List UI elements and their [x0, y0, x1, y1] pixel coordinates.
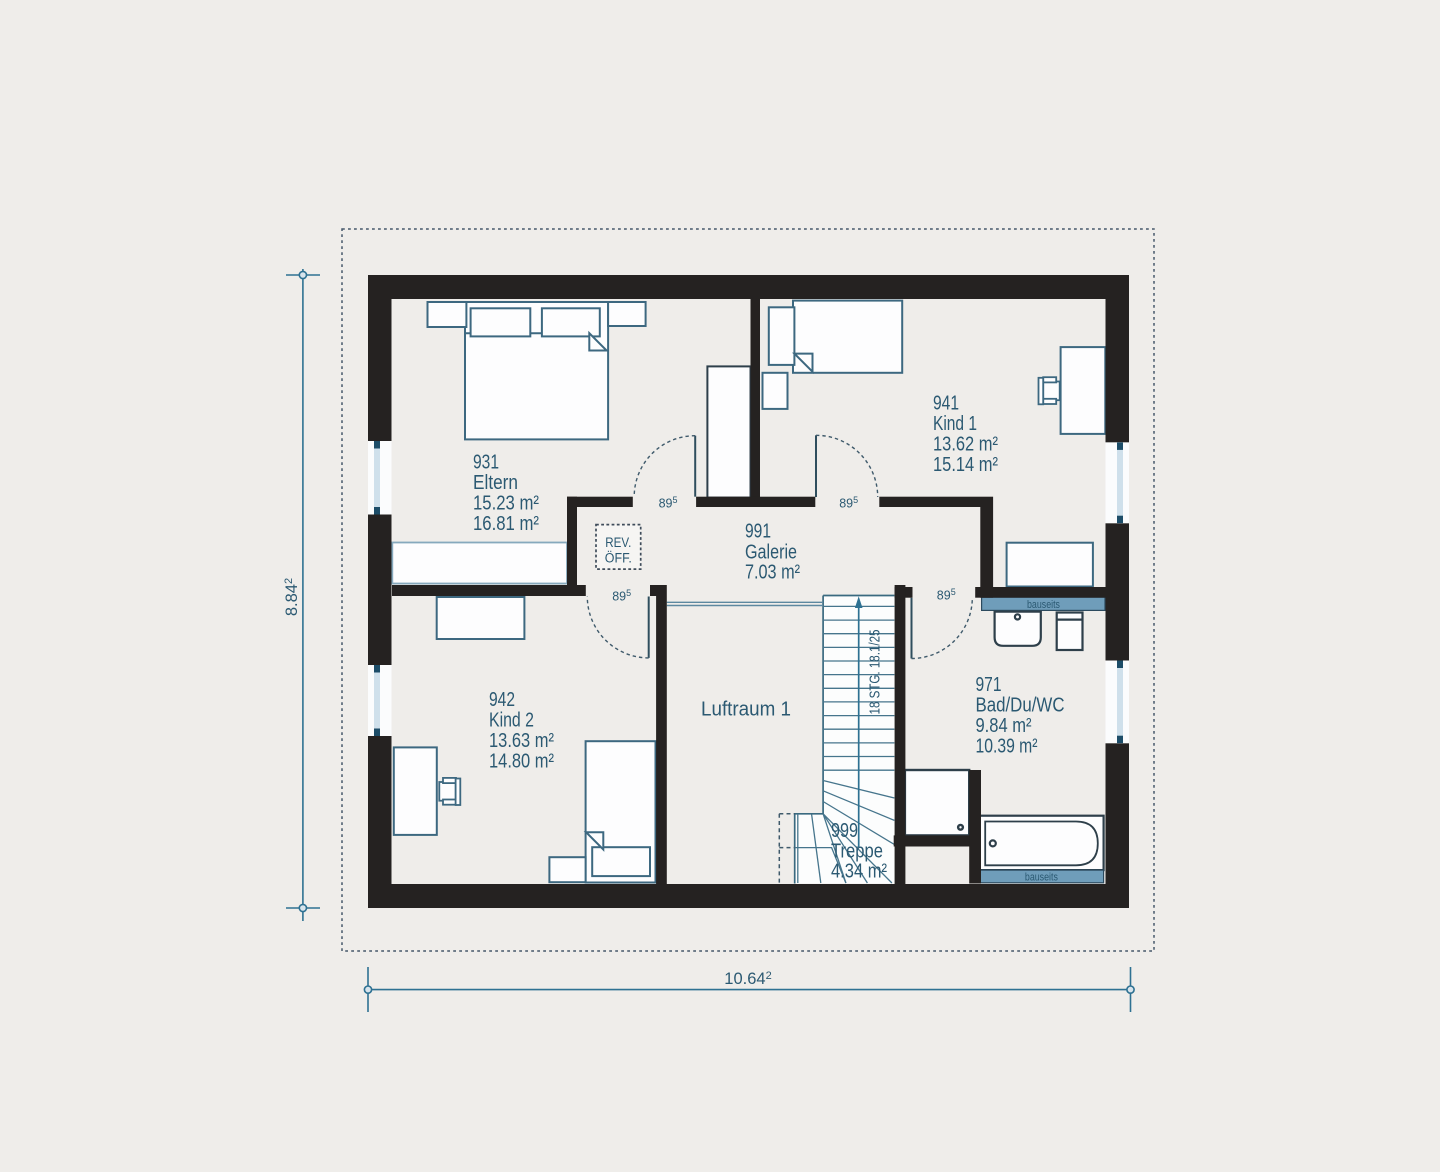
svg-text:15.14 m²: 15.14 m² [933, 454, 998, 476]
svg-text:Eltern: Eltern [473, 472, 518, 494]
svg-text:942: 942 [489, 689, 515, 711]
svg-text:971: 971 [976, 674, 1002, 696]
svg-text:bauseits: bauseits [1025, 872, 1058, 884]
svg-text:13.63 m²: 13.63 m² [489, 730, 554, 752]
svg-text:13.62 m²: 13.62 m² [933, 434, 998, 456]
svg-text:4.34 m²: 4.34 m² [831, 861, 887, 883]
svg-text:Galerie: Galerie [745, 541, 797, 563]
svg-text:Kind 1: Kind 1 [933, 413, 977, 435]
svg-text:14.80 m²: 14.80 m² [489, 751, 554, 773]
svg-text:10.39 m²: 10.39 m² [976, 736, 1038, 758]
svg-text:991: 991 [745, 521, 771, 543]
svg-text:15.23 m²: 15.23 m² [473, 493, 539, 515]
svg-text:Bad/Du/WC: Bad/Du/WC [976, 695, 1065, 717]
svg-text:999: 999 [831, 820, 858, 842]
svg-text:bauseits: bauseits [1027, 599, 1060, 611]
svg-text:7.03 m²: 7.03 m² [745, 561, 800, 583]
svg-text:Luftraum 1: Luftraum 1 [701, 699, 791, 721]
svg-text:931: 931 [473, 452, 499, 474]
svg-text:Treppe: Treppe [831, 841, 883, 863]
svg-text:9.84 m²: 9.84 m² [976, 715, 1032, 737]
svg-text:18 STG. 18.1/25: 18 STG. 18.1/25 [867, 630, 884, 715]
svg-text:Kind 2: Kind 2 [489, 710, 534, 732]
svg-text:16.81 m²: 16.81 m² [473, 513, 539, 535]
svg-text:10.642: 10.642 [724, 970, 771, 988]
svg-text:ÖFF.: ÖFF. [605, 551, 632, 566]
svg-text:941: 941 [933, 393, 959, 415]
svg-text:REV.: REV. [605, 535, 631, 550]
